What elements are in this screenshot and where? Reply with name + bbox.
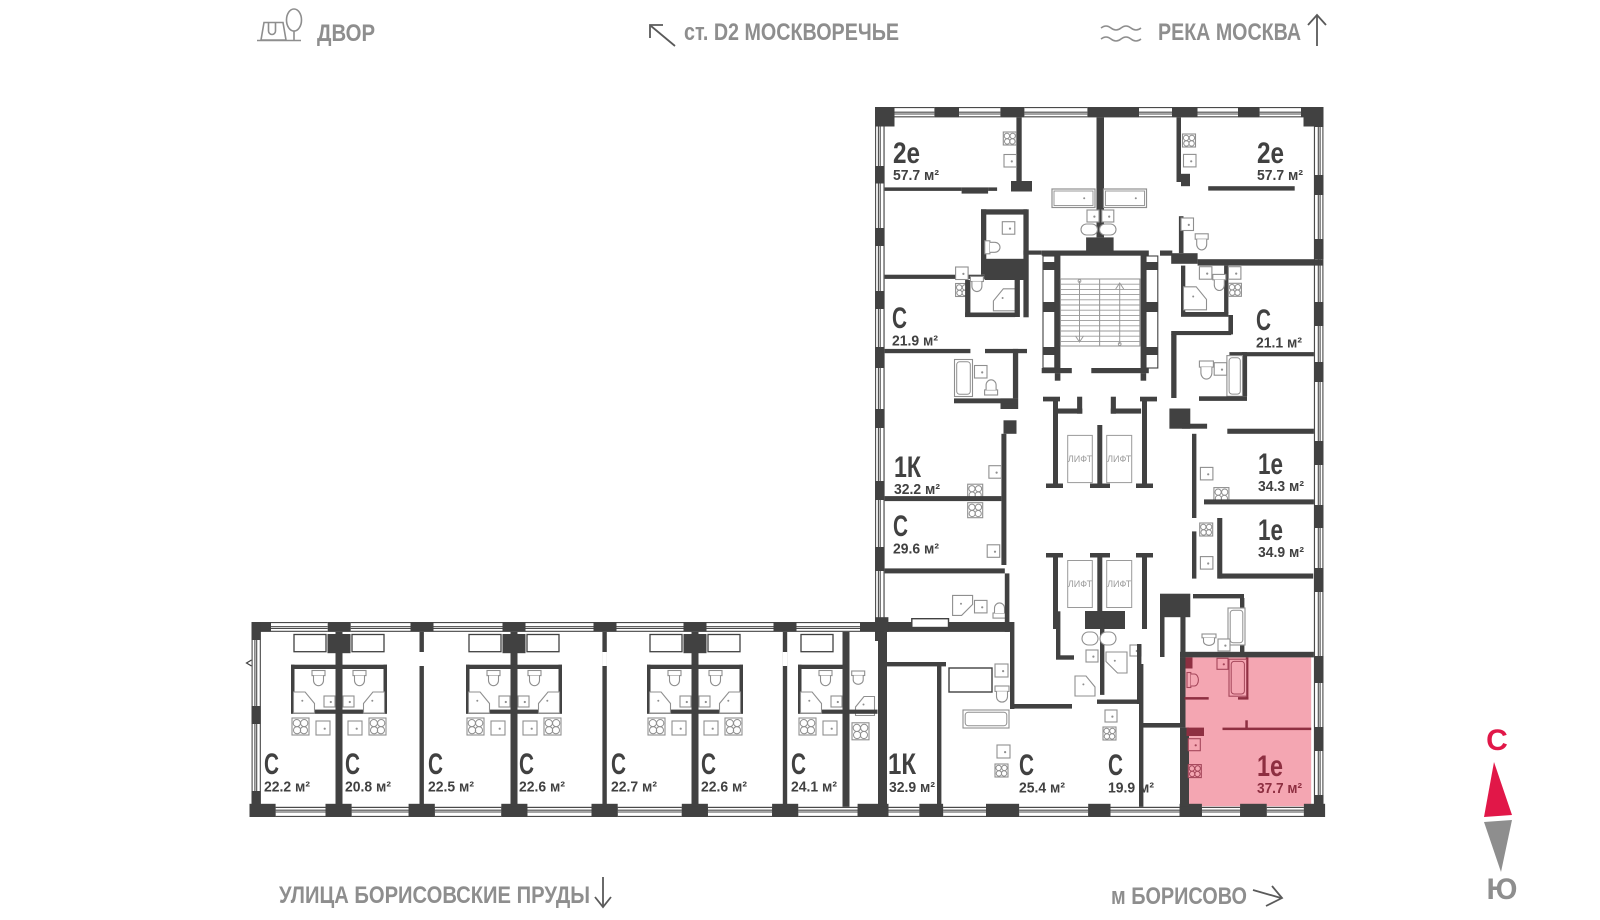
svg-text:21.1 м²: 21.1 м² xyxy=(1256,336,1302,352)
svg-text:37.7 м²: 37.7 м² xyxy=(1257,781,1302,797)
svg-text:25.4 м²: 25.4 м² xyxy=(1019,781,1065,797)
svg-text:С: С xyxy=(892,302,907,335)
svg-text:ДВОР: ДВОР xyxy=(317,20,375,47)
svg-text:С: С xyxy=(791,748,806,781)
svg-text:57.7 м²: 57.7 м² xyxy=(893,168,939,184)
svg-text:С: С xyxy=(611,748,626,781)
svg-text:С: С xyxy=(893,510,908,543)
svg-text:1е: 1е xyxy=(1258,514,1283,547)
svg-text:24.1 м²: 24.1 м² xyxy=(791,780,837,796)
svg-text:19.9 м²: 19.9 м² xyxy=(1108,781,1154,797)
svg-text:21.9 м²: 21.9 м² xyxy=(892,334,938,350)
svg-text:ЛИФТ: ЛИФТ xyxy=(1068,579,1093,589)
svg-text:22.7 м²: 22.7 м² xyxy=(611,780,657,796)
svg-text:УЛИЦА БОРИСОВСКИЕ ПРУДЫ: УЛИЦА БОРИСОВСКИЕ ПРУДЫ xyxy=(279,882,590,909)
svg-text:С: С xyxy=(1108,749,1123,782)
svg-text:С: С xyxy=(519,748,534,781)
svg-text:С: С xyxy=(1486,724,1508,757)
svg-text:32.2 м²: 32.2 м² xyxy=(894,482,940,498)
svg-text:ЛИФТ: ЛИФТ xyxy=(1107,454,1132,464)
svg-text:32.9 м²: 32.9 м² xyxy=(889,780,935,796)
svg-text:57.7 м²: 57.7 м² xyxy=(1257,168,1303,184)
svg-text:ЛИФТ: ЛИФТ xyxy=(1107,579,1132,589)
svg-text:2е: 2е xyxy=(1257,137,1284,170)
svg-text:22.2 м²: 22.2 м² xyxy=(264,780,310,796)
svg-text:34.9 м²: 34.9 м² xyxy=(1258,545,1304,561)
svg-text:22.6 м²: 22.6 м² xyxy=(701,780,747,796)
svg-text:С: С xyxy=(264,748,279,781)
svg-text:2е: 2е xyxy=(893,137,920,170)
svg-text:1К: 1К xyxy=(894,451,922,484)
svg-text:С: С xyxy=(1256,304,1271,337)
svg-text:22.5 м²: 22.5 м² xyxy=(428,780,474,796)
svg-text:20.8 м²: 20.8 м² xyxy=(345,780,391,796)
svg-text:1е: 1е xyxy=(1258,448,1283,481)
svg-text:м БОРИСОВО: м БОРИСОВО xyxy=(1111,883,1247,910)
svg-text:22.6 м²: 22.6 м² xyxy=(519,780,565,796)
svg-text:ст. D2 МОСКВОРЕЧЬЕ: ст. D2 МОСКВОРЕЧЬЕ xyxy=(684,19,899,46)
svg-text:34.3 м²: 34.3 м² xyxy=(1258,479,1304,495)
svg-text:Ю: Ю xyxy=(1487,873,1518,906)
svg-text:С: С xyxy=(428,748,443,781)
svg-text:С: С xyxy=(1019,749,1034,782)
svg-text:1е: 1е xyxy=(1257,750,1283,783)
svg-text:29.6 м²: 29.6 м² xyxy=(893,542,939,558)
svg-text:1К: 1К xyxy=(888,748,917,781)
svg-text:С: С xyxy=(701,748,716,781)
svg-text:ЛИФТ: ЛИФТ xyxy=(1068,454,1093,464)
svg-text:С: С xyxy=(345,748,360,781)
svg-text:РЕКА МОСКВА: РЕКА МОСКВА xyxy=(1158,19,1301,46)
